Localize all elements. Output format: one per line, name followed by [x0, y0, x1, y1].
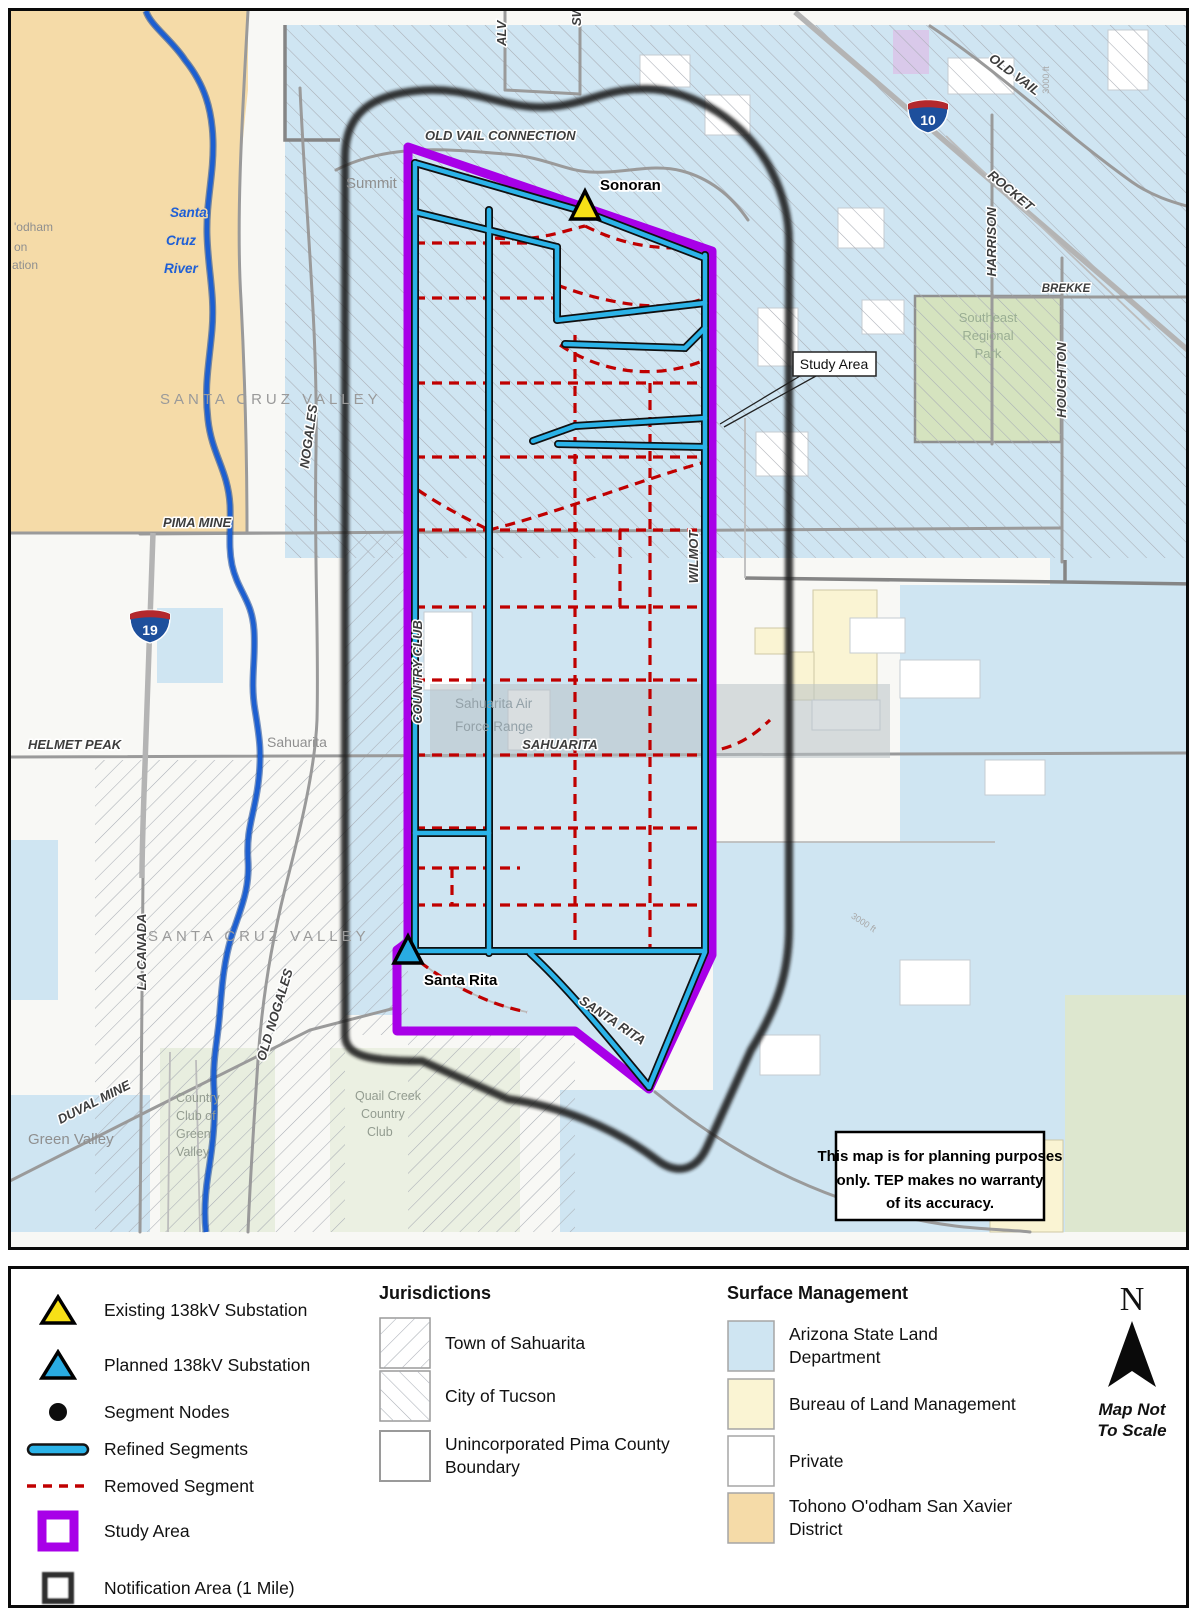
pima-mine-label: PIMA MINE	[163, 515, 231, 530]
legend-label: Notification Area (1 Mile)	[104, 1578, 295, 1599]
sahuarita-hatch-icon	[379, 1317, 431, 1369]
la-canada-label: LA CANADA	[134, 914, 149, 991]
legend-item-notification-area: Notification Area (1 Mile)	[25, 1566, 295, 1610]
santa-cruz-valley-label-n: SANTA CRUZ VALLEY	[160, 391, 382, 408]
blm-swatch	[727, 1378, 775, 1430]
legend-label: Town of Sahuarita	[445, 1333, 585, 1354]
legend-label: Planned 138kV Substation	[104, 1355, 310, 1376]
cc-green-valley-2: Club of	[176, 1109, 216, 1123]
tohono-partial-1: 'odham	[14, 220, 53, 234]
planned-substation-icon	[39, 1349, 77, 1382]
swan-road-label: SW	[569, 11, 584, 26]
legend-item-blm: Bureau of Land Management	[727, 1377, 1016, 1431]
legend-label: Tohono O'odham San XavierDistrict	[789, 1495, 1109, 1541]
jurisdictions-title: Jurisdictions	[379, 1283, 491, 1304]
legend-item-existing-substation: Existing 138kV Substation	[25, 1288, 307, 1332]
legend-item-study-area: Study Area	[25, 1509, 190, 1553]
legend-panel: Existing 138kV Substation Planned 138kV …	[8, 1266, 1189, 1608]
legend-label: Existing 138kV Substation	[104, 1300, 307, 1321]
map-canvas: OLD VAIL CONNECTION Summit Sonoran ALV S…	[8, 8, 1189, 1250]
legend-label: Study Area	[104, 1521, 190, 1542]
legend-item-city-of-tucson: City of Tucson	[379, 1369, 556, 1423]
legend-item-private: Private	[727, 1434, 843, 1488]
se-park-label-1: Southeast	[959, 310, 1018, 325]
air-force-range-label-2: Force Range	[455, 719, 533, 734]
river-label-3: River	[164, 261, 199, 276]
legend-item-planned-substation: Planned 138kV Substation	[25, 1343, 310, 1387]
legend-label: Bureau of Land Management	[789, 1394, 1016, 1415]
legend-item-unincorporated-pima: Unincorporated Pima CountyBoundary	[379, 1429, 745, 1483]
brekke-label: BREKKE	[1042, 283, 1091, 295]
quail-creek-3: Club	[367, 1125, 393, 1139]
svg-text:only. TEP makes no warranty: only. TEP makes no warranty	[836, 1172, 1044, 1189]
svg-text:10: 10	[920, 112, 936, 128]
north-letter: N	[1077, 1283, 1187, 1317]
svg-text:This map is for planning purpo: This map is for planning purposes	[817, 1148, 1062, 1165]
river-label-2: Cruz	[166, 233, 196, 248]
study-area-icon	[36, 1509, 80, 1553]
svg-text:19: 19	[142, 622, 158, 638]
scale-note-top: 3000 ft	[1041, 66, 1051, 94]
air-force-range-label-1: Sahuarita Air	[455, 696, 533, 711]
se-park-label-2: Regional	[962, 328, 1013, 343]
svg-text:of its accuracy.: of its accuracy.	[886, 1195, 994, 1212]
legend-item-removed-segment: Removed Segment	[25, 1464, 254, 1508]
country-club-label: COUNTRY CLUB	[410, 620, 425, 724]
sonoran-substation-label: Sonoran	[600, 177, 661, 194]
north-arrow-icon	[1100, 1319, 1164, 1393]
map-not-to-scale: Map NotTo Scale	[1077, 1399, 1187, 1442]
cc-green-valley-3: Green	[176, 1127, 211, 1141]
legend-label: Unincorporated Pima CountyBoundary	[445, 1433, 745, 1479]
santa-rita-substation-label: Santa Rita	[424, 972, 498, 989]
cc-green-valley-4: Valley	[176, 1145, 210, 1159]
wilmot-label: WILMOT	[686, 530, 701, 584]
notification-area-icon	[37, 1567, 79, 1609]
tohono-swatch	[727, 1492, 775, 1544]
legend-label: Arizona State LandDepartment	[789, 1323, 1109, 1369]
quail-creek-2: Country	[361, 1107, 406, 1121]
svg-text:Study Area: Study Area	[800, 356, 869, 372]
houghton-label: HOUGHTON	[1054, 342, 1069, 418]
surface-management-title: Surface Management	[727, 1283, 908, 1304]
legend-label: Removed Segment	[104, 1476, 254, 1497]
alvernon-road-label: ALV	[494, 19, 509, 47]
old-vail-connection-label: OLD VAIL CONNECTION	[425, 128, 576, 143]
removed-segment-icon	[25, 1481, 91, 1491]
tucson-hatch-icon	[379, 1370, 431, 1422]
quail-creek-1: Quail Creek	[355, 1089, 422, 1103]
river-label-1: Santa	[170, 205, 207, 220]
tohono-partial-2: on	[14, 240, 27, 254]
terrain-green-area	[1065, 995, 1186, 1232]
existing-substation-icon	[39, 1294, 77, 1327]
refined-segment-icon	[25, 1441, 91, 1458]
north-arrow-block: N Map NotTo Scale	[1077, 1283, 1187, 1442]
sahuarita-town-label: Sahuarita	[267, 734, 327, 750]
legend-item-arizona-state-land: Arizona State LandDepartment	[727, 1319, 1109, 1373]
cc-green-valley-1: Country	[176, 1091, 221, 1105]
legend-label: Refined Segments	[104, 1439, 248, 1460]
green-valley-label: Green Valley	[28, 1131, 114, 1148]
disclaimer-box: This map is for planning purposes only. …	[817, 1132, 1062, 1220]
legend-item-tohono: Tohono O'odham San XavierDistrict	[727, 1491, 1109, 1545]
legend-label: Segment Nodes	[104, 1402, 230, 1423]
tohono-partial-3: ation	[12, 258, 38, 272]
legend-label: City of Tucson	[445, 1386, 556, 1407]
segment-node-icon	[46, 1400, 70, 1424]
harrison-label: HARRISON	[984, 207, 999, 277]
private-swatch	[727, 1435, 775, 1487]
sahuarita-road-label: SAHUARITA	[522, 737, 598, 752]
summit-label: Summit	[346, 175, 398, 192]
legend-label: Private	[789, 1451, 843, 1472]
se-park-label-3: Park	[975, 346, 1002, 361]
state-land-swatch	[727, 1320, 775, 1372]
pima-county-icon	[379, 1430, 431, 1482]
helmet-peak-label: HELMET PEAK	[28, 737, 123, 752]
santa-cruz-valley-label-s: SANTA CRUZ VALLEY	[148, 928, 370, 945]
legend-item-town-of-sahuarita: Town of Sahuarita	[379, 1316, 585, 1370]
